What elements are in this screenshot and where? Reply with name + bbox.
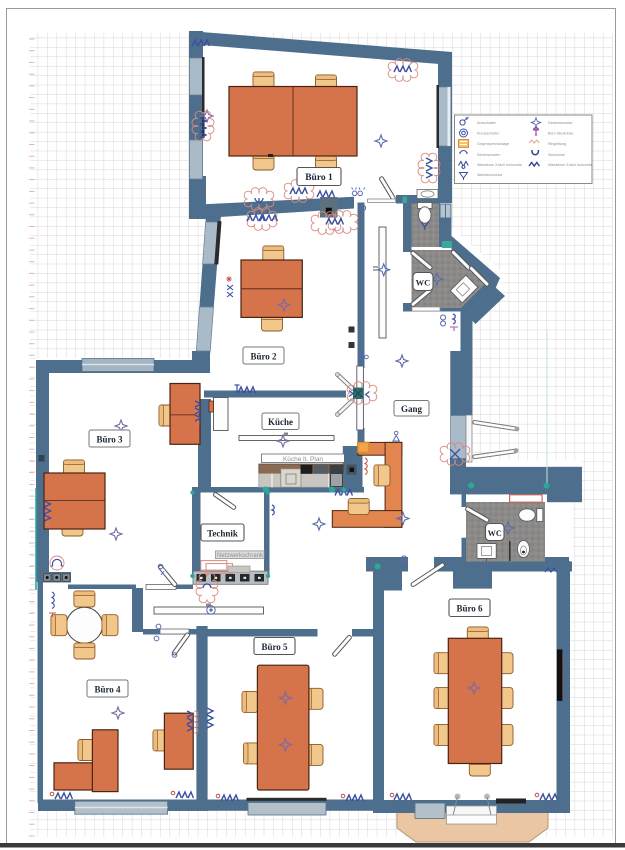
svg-text:WC: WC <box>488 529 502 538</box>
svg-text:Wanddose 3-fach horizontal: Wanddose 3-fach horizontal <box>548 163 593 167</box>
svg-text:Gegensprechanlage: Gegensprechanlage <box>477 142 509 146</box>
svg-text:Büro 6: Büro 6 <box>456 604 483 614</box>
svg-text:Büro Steckdose: Büro Steckdose <box>548 132 573 136</box>
svg-text:Büro 4: Büro 4 <box>94 685 121 695</box>
svg-text:Gang: Gang <box>401 404 423 414</box>
svg-text:Büro 2: Büro 2 <box>250 352 277 362</box>
svg-text:Ringleitung: Ringleitung <box>548 142 566 146</box>
svg-text:Wandanschluss: Wandanschluss <box>477 173 502 177</box>
svg-text:WC: WC <box>416 278 431 288</box>
svg-text:Küche lt. Plan: Küche lt. Plan <box>283 456 323 463</box>
svg-text:Kreuzschalter: Kreuzschalter <box>477 132 500 136</box>
svg-text:Küche: Küche <box>268 417 293 427</box>
svg-text:Technik: Technik <box>207 529 238 539</box>
svg-text:Wanddose 3-fach horizontal: Wanddose 3-fach horizontal <box>477 163 522 167</box>
svg-text:Steckdose: Steckdose <box>548 153 565 157</box>
svg-text:Büro 3: Büro 3 <box>96 435 123 445</box>
svg-text:Büro 1: Büro 1 <box>305 173 333 183</box>
svg-text:Serienschalter: Serienschalter <box>477 153 501 157</box>
svg-text:Netzwerkschrank: Netzwerkschrank <box>217 553 264 559</box>
svg-text:Deckenauslass: Deckenauslass <box>548 121 573 125</box>
svg-text:Ausschalter: Ausschalter <box>477 121 497 125</box>
svg-text:Büro 5: Büro 5 <box>261 642 288 652</box>
